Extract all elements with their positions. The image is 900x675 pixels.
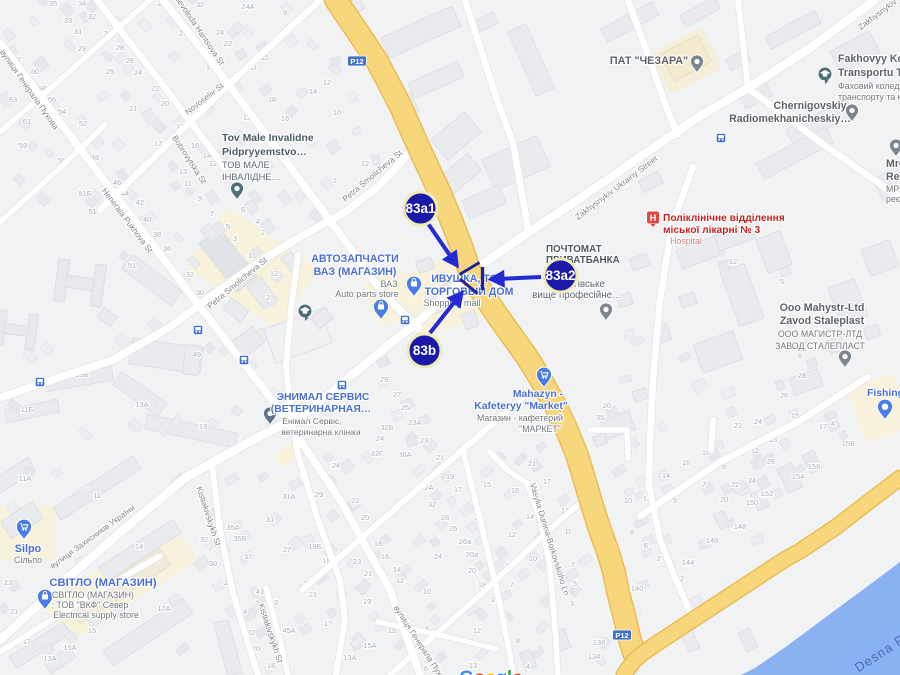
svg-text:МРЕ: МРЕ (886, 184, 900, 194)
svg-text:8: 8 (516, 636, 520, 645)
svg-text:ПОЧТОМАТ: ПОЧТОМАТ (546, 244, 602, 255)
svg-text:25: 25 (106, 67, 114, 76)
svg-text:26: 26 (767, 457, 775, 466)
svg-text:o: o (485, 668, 497, 675)
svg-text:17: 17 (454, 485, 462, 494)
svg-text:15А: 15А (63, 643, 76, 652)
svg-text:22: 22 (731, 480, 739, 489)
svg-text:o: o (474, 668, 486, 675)
svg-text:1: 1 (248, 251, 252, 260)
svg-text:8: 8 (630, 528, 634, 537)
svg-text:83a1: 83a1 (405, 201, 436, 216)
svg-text:4: 4 (831, 419, 835, 428)
svg-text:35Б: 35Б (233, 534, 246, 543)
svg-text:3: 3 (570, 599, 574, 608)
svg-text:10: 10 (529, 554, 537, 563)
svg-text:40: 40 (143, 215, 151, 224)
svg-text:22: 22 (224, 39, 232, 48)
svg-text:2: 2 (333, 176, 337, 185)
svg-text:20: 20 (603, 401, 611, 410)
svg-text:9: 9 (283, 8, 287, 17)
svg-text:154: 154 (792, 472, 805, 481)
svg-text:Chernigovskiy: Chernigovskiy (773, 100, 846, 112)
svg-text:24: 24 (434, 552, 442, 561)
svg-text:Electrical supply store: Electrical supply store (53, 610, 139, 620)
svg-text:156: 156 (808, 462, 821, 471)
svg-text:Фаховий коледж: Фаховий коледж (838, 81, 900, 91)
svg-text:28: 28 (441, 513, 449, 522)
svg-text:63: 63 (9, 95, 17, 104)
svg-text:19Б: 19Б (308, 542, 321, 551)
svg-text:6: 6 (424, 664, 428, 673)
svg-text:27: 27 (393, 390, 401, 399)
svg-text:83a2: 83a2 (545, 268, 575, 283)
svg-text:ООО МАГИСТР-ЛТД: ООО МАГИСТР-ЛТД (778, 329, 862, 339)
svg-text:Fakhovyy Kole: Fakhovyy Kole (838, 53, 900, 65)
svg-text:9: 9 (198, 194, 202, 203)
svg-text:G: G (459, 668, 474, 675)
svg-text:18: 18 (267, 661, 275, 670)
svg-text:45А: 45А (282, 626, 295, 635)
svg-text:16: 16 (511, 486, 519, 495)
svg-text:20: 20 (361, 513, 369, 522)
svg-text:ПАТ "ЧЕЗАРА": ПАТ "ЧЕЗАРА" (610, 55, 688, 67)
svg-text:17: 17 (819, 422, 827, 431)
svg-text:27: 27 (283, 545, 291, 554)
svg-text:49: 49 (193, 350, 201, 359)
svg-text:12: 12 (396, 576, 404, 585)
svg-text:35А: 35А (226, 523, 239, 532)
svg-text:Auto parts store: Auto parts store (335, 289, 399, 299)
svg-text:31: 31 (266, 515, 274, 524)
svg-text:13А: 13А (343, 653, 356, 662)
svg-text:134: 134 (588, 652, 601, 661)
svg-text:12: 12 (729, 257, 737, 266)
svg-text:16: 16 (381, 552, 389, 561)
svg-text:17: 17 (324, 619, 332, 628)
svg-text:158: 158 (842, 439, 855, 448)
svg-text:28: 28 (116, 43, 124, 52)
svg-text:Tov Male Invalidne: Tov Male Invalidne (222, 133, 314, 144)
svg-text:59: 59 (19, 141, 27, 150)
svg-text:20: 20 (468, 566, 476, 575)
svg-text:Radiomekhanicheskiy…: Radiomekhanicheskiy… (729, 113, 851, 125)
svg-text:СВІТЛО (МАГАЗИН): СВІТЛО (МАГАЗИН) (49, 577, 156, 589)
svg-text:11: 11 (184, 179, 192, 188)
svg-text:6: 6 (798, 351, 802, 360)
svg-text:36А: 36А (398, 450, 411, 459)
svg-text:ЗАВОД СТАЛЕПЛАСТ: ЗАВОД СТАЛЕПЛАСТ (775, 341, 865, 351)
svg-text:32: 32 (196, 0, 204, 9)
svg-text:144: 144 (682, 558, 695, 567)
svg-text:23: 23 (4, 578, 12, 587)
svg-text:23: 23 (353, 557, 361, 566)
svg-text:24А: 24А (241, 2, 254, 11)
svg-text:26: 26 (126, 56, 134, 65)
svg-text:(ВЕТЕРИНАРНАЯ…: (ВЕТЕРИНАРНАЯ… (271, 404, 371, 415)
svg-text:18: 18 (268, 95, 276, 104)
svg-text:21: 21 (309, 590, 317, 599)
svg-text:26: 26 (780, 391, 788, 400)
svg-text:24: 24 (754, 417, 762, 426)
svg-text:12А: 12А (157, 604, 170, 613)
svg-text:7: 7 (571, 560, 575, 569)
svg-text:Kafeteryy "Market": Kafeteryy "Market" (474, 401, 568, 412)
svg-text:26: 26 (449, 524, 457, 533)
svg-text:61: 61 (23, 117, 31, 126)
svg-text:12: 12 (361, 159, 369, 168)
svg-text:32: 32 (428, 500, 436, 509)
svg-text:32: 32 (200, 535, 208, 544)
svg-text:22: 22 (151, 84, 159, 93)
svg-text:ТОВ МАЛЕ: ТОВ МАЛЕ (222, 160, 270, 170)
svg-text:29: 29 (315, 490, 323, 499)
svg-text:12: 12 (508, 530, 516, 539)
svg-text:21: 21 (364, 569, 372, 578)
svg-text:19: 19 (363, 597, 371, 606)
svg-text:21: 21 (129, 104, 137, 113)
svg-text:52: 52 (79, 119, 87, 128)
svg-text:3: 3 (233, 234, 237, 243)
svg-text:ВАЗ: ВАЗ (380, 279, 397, 289)
svg-text:5: 5 (226, 222, 230, 231)
svg-text:29: 29 (78, 44, 86, 53)
svg-text:24: 24 (332, 461, 340, 470)
svg-text:152: 152 (761, 489, 774, 498)
svg-text:ВАЗ (МАГАЗИН): ВАЗ (МАГАЗИН) (314, 266, 397, 278)
svg-text:14: 14 (662, 471, 670, 480)
svg-text:83b: 83b (413, 343, 436, 358)
svg-text:Mre: Mre (886, 158, 900, 170)
svg-text:Hospital: Hospital (670, 236, 702, 246)
svg-text:16: 16 (682, 458, 690, 467)
svg-text:ІНВАЛІДНЕ…: ІНВАЛІДНЕ… (222, 172, 281, 182)
svg-text:14: 14 (135, 542, 143, 551)
svg-text:21: 21 (528, 459, 536, 468)
svg-text:4: 4 (526, 662, 530, 671)
svg-text:10: 10 (333, 108, 341, 117)
svg-text:Сільпо: Сільпо (14, 555, 42, 565)
svg-text:51: 51 (128, 261, 136, 270)
svg-text:ветеринарна клініка: ветеринарна клініка (281, 427, 361, 437)
svg-text:146: 146 (706, 536, 719, 545)
svg-text:20а: 20а (466, 550, 479, 559)
svg-text:25: 25 (401, 403, 409, 412)
svg-text:150: 150 (746, 498, 759, 507)
svg-text:транспорту та ко…: транспорту та ко… (838, 92, 900, 102)
svg-text:32Г: 32Г (371, 449, 383, 458)
svg-text:4: 4 (256, 217, 260, 226)
svg-text:23: 23 (420, 436, 428, 445)
svg-text:21: 21 (436, 453, 444, 462)
svg-text:12: 12 (270, 269, 278, 278)
svg-text:21: 21 (10, 607, 18, 616)
svg-text:міської лікарні № 3: міської лікарні № 3 (663, 225, 760, 236)
svg-text:31: 31 (74, 27, 82, 36)
svg-text:Zavod Staleplast: Zavod Staleplast (780, 315, 865, 327)
svg-text:5: 5 (573, 579, 577, 588)
svg-text:30: 30 (209, 559, 217, 568)
svg-text:20: 20 (161, 99, 169, 108)
svg-text:16: 16 (191, 141, 199, 150)
svg-text:29: 29 (380, 375, 388, 384)
svg-text:14: 14 (309, 87, 317, 96)
svg-text:6: 6 (241, 205, 245, 214)
svg-text:7: 7 (210, 209, 214, 218)
svg-text:СВІТЛО (МАГАЗИН): СВІТЛО (МАГАЗИН) (52, 590, 134, 600)
svg-text:42: 42 (136, 198, 144, 207)
svg-text:6: 6 (644, 541, 648, 550)
svg-text:26а: 26а (459, 537, 472, 546)
svg-text:P12: P12 (350, 57, 363, 66)
svg-text:22: 22 (351, 496, 359, 505)
svg-text:11: 11 (93, 491, 101, 500)
svg-text:23А: 23А (408, 418, 421, 427)
svg-text:13: 13 (179, 167, 187, 176)
svg-text:22: 22 (734, 421, 742, 430)
svg-text:13А: 13А (135, 400, 148, 409)
svg-text:32: 32 (186, 270, 194, 279)
svg-text:12: 12 (473, 626, 481, 635)
svg-text:36: 36 (163, 244, 171, 253)
svg-text:ЭНИМАЛ СЕРВИС: ЭНИМАЛ СЕРВИС (277, 392, 370, 403)
svg-text:17: 17 (543, 477, 551, 486)
svg-text:H: H (650, 213, 657, 223)
svg-text:; ТОВ "ВКФ" Север: ; ТОВ "ВКФ" Север (52, 600, 129, 610)
svg-text:Transportu Ta: Transportu Ta (838, 67, 900, 79)
svg-text:34: 34 (78, 0, 86, 8)
svg-text:12: 12 (323, 78, 331, 87)
svg-text:15: 15 (88, 626, 96, 635)
svg-text:вище професійне…: вище професійне… (532, 290, 622, 301)
svg-text:16: 16 (281, 114, 289, 123)
svg-text:28: 28 (798, 371, 806, 380)
svg-text:33: 33 (64, 16, 72, 25)
svg-text:реєс: реєс (886, 194, 900, 204)
svg-text:2: 2 (657, 554, 661, 563)
svg-text:20: 20 (720, 495, 728, 504)
svg-text:"МАРКЕТ": "МАРКЕТ" (519, 424, 561, 434)
svg-text:35: 35 (49, 0, 57, 8)
svg-text:51Б: 51Б (78, 189, 91, 198)
svg-text:P12: P12 (615, 631, 628, 640)
svg-text:e: e (512, 668, 523, 675)
svg-text:38: 38 (153, 230, 161, 239)
svg-text:Енімал Сервіс,: Енімал Сервіс, (282, 416, 341, 426)
svg-text:24: 24 (748, 476, 756, 485)
svg-text:60: 60 (31, 67, 39, 76)
svg-text:37: 37 (244, 552, 252, 561)
svg-text:10: 10 (423, 587, 431, 596)
svg-text:7: 7 (702, 480, 706, 489)
svg-text:Магазин - кафетерий: Магазин - кафетерий (477, 413, 563, 423)
svg-text:Поліклінічне відділення: Поліклінічне відділення (663, 213, 785, 224)
svg-text:АВТОЗАПЧАСТИ: АВТОЗАПЧАСТИ (311, 253, 398, 265)
svg-text:148: 148 (734, 522, 747, 531)
svg-text:Pidpryyemstvo…: Pidpryyemstvo… (222, 147, 307, 158)
svg-text:15: 15 (483, 480, 491, 489)
svg-text:32: 32 (88, 12, 96, 21)
svg-text:5: 5 (780, 277, 784, 286)
svg-text:13А: 13А (43, 654, 56, 663)
svg-text:136: 136 (593, 638, 606, 647)
svg-text:24: 24 (376, 434, 384, 443)
svg-text:24: 24 (134, 68, 142, 77)
svg-text:2: 2 (266, 293, 270, 302)
svg-text:13: 13 (199, 422, 207, 431)
svg-text:14: 14 (526, 512, 534, 521)
svg-text:24: 24 (216, 28, 224, 37)
svg-text:140: 140 (631, 584, 644, 593)
svg-text:Fishing st: Fishing st (867, 388, 900, 399)
svg-text:31А: 31А (282, 492, 295, 501)
svg-text:11А: 11А (19, 474, 32, 483)
svg-text:Mahazyn -: Mahazyn - (513, 389, 564, 400)
svg-text:18: 18 (374, 539, 382, 548)
svg-text:35: 35 (596, 413, 604, 422)
svg-text:14: 14 (393, 565, 401, 574)
svg-text:Rey: Rey (886, 171, 900, 183)
svg-text:Silpo: Silpo (15, 543, 42, 555)
svg-text:2: 2 (261, 228, 265, 237)
svg-text:15А: 15А (363, 641, 376, 650)
svg-text:g: g (496, 668, 508, 675)
svg-text:19: 19 (446, 472, 454, 481)
svg-text:10: 10 (624, 496, 632, 505)
svg-text:11: 11 (564, 527, 572, 536)
svg-text:7: 7 (510, 580, 514, 589)
svg-text:32Б: 32Б (380, 423, 393, 432)
svg-text:Ooo Mahystr-Ltd: Ooo Mahystr-Ltd (780, 302, 865, 314)
svg-text:11Б: 11Б (21, 405, 34, 414)
